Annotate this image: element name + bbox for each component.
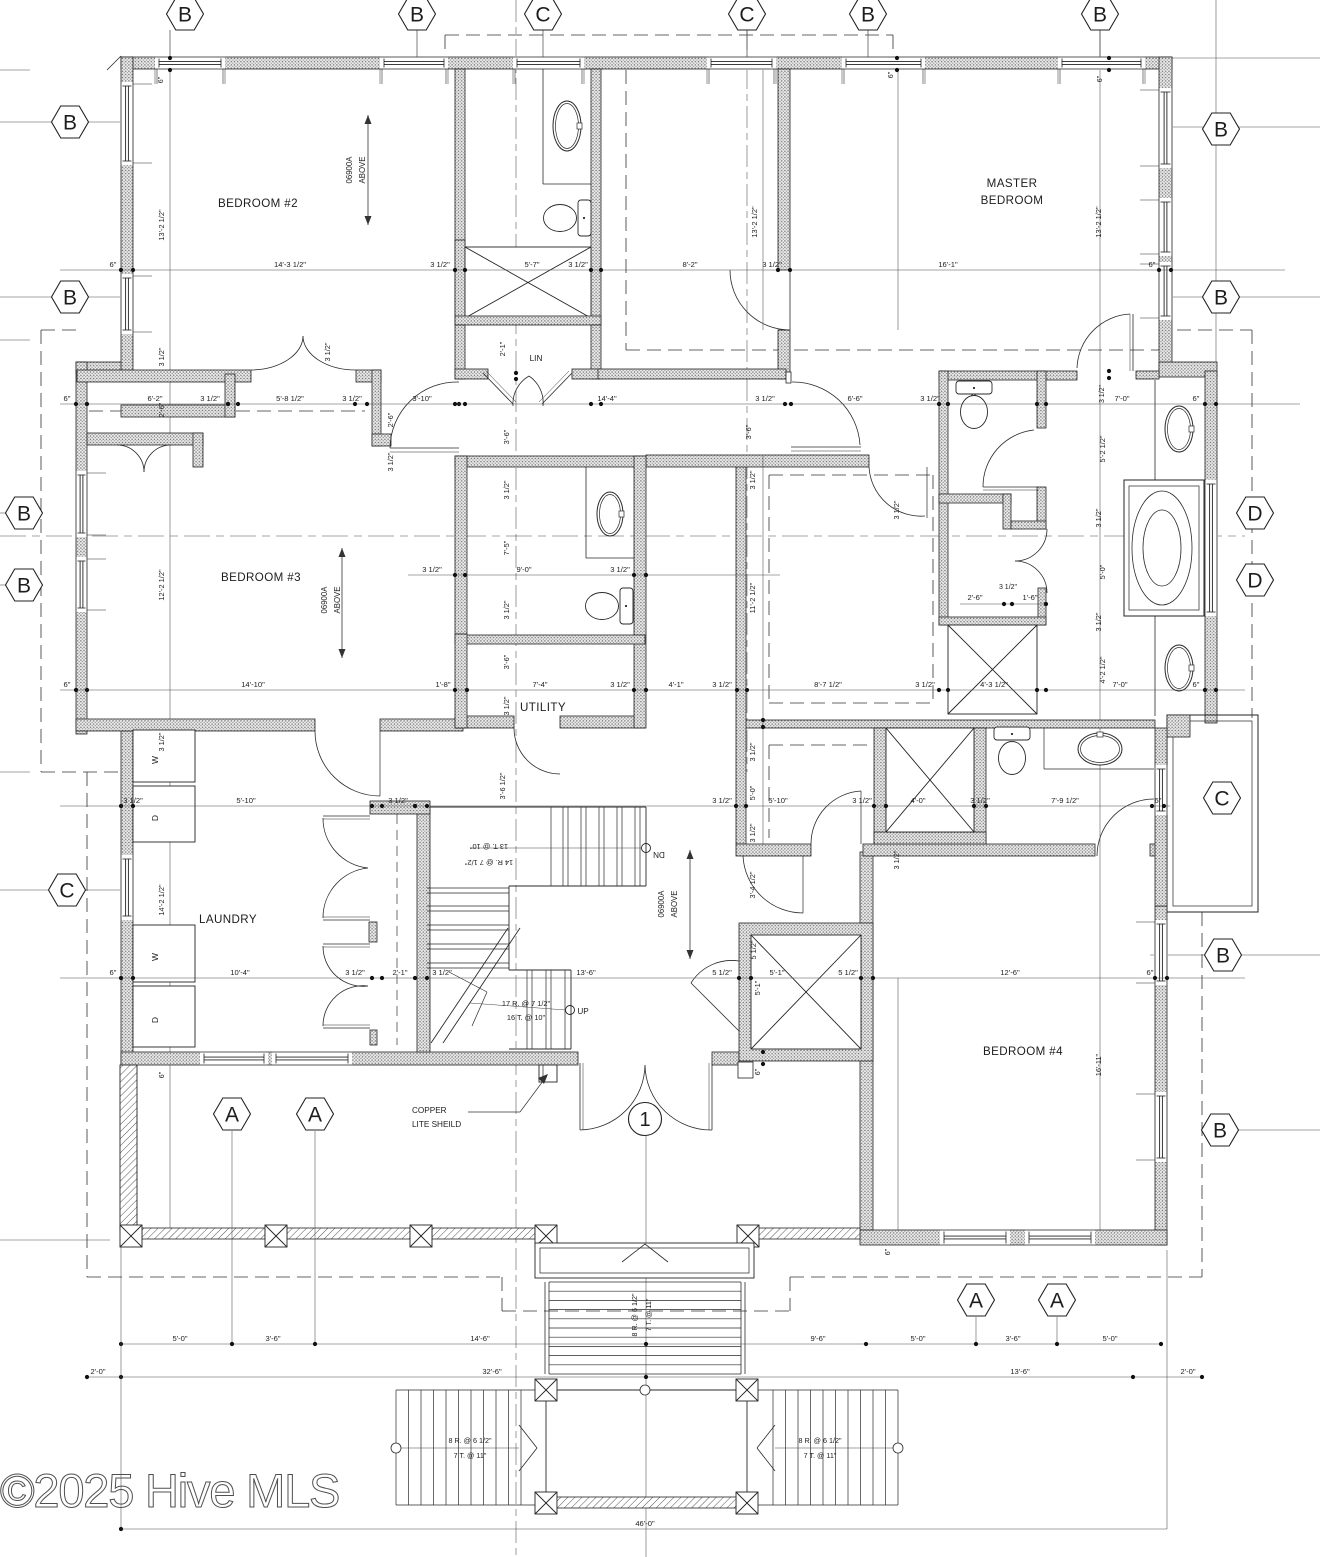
svg-text:B: B (410, 4, 424, 27)
svg-text:C: C (59, 880, 74, 903)
svg-text:8 R. @ 6 1/2": 8 R. @ 6 1/2" (630, 1293, 639, 1336)
svg-text:C: C (1214, 788, 1229, 811)
svg-text:06900A: 06900A (345, 156, 354, 184)
svg-text:06900A: 06900A (657, 890, 666, 918)
svg-text:4'-1": 4'-1" (668, 680, 683, 689)
svg-text:DN: DN (653, 850, 665, 859)
svg-text:5'-0": 5'-0" (748, 785, 757, 800)
svg-text:B: B (861, 4, 875, 27)
svg-text:4'-0": 4'-0" (910, 796, 925, 805)
svg-text:11'-2 1/2": 11'-2 1/2" (748, 582, 757, 613)
svg-text:7 T. @ 11": 7 T. @ 11" (644, 1298, 653, 1331)
svg-text:5'-0": 5'-0" (172, 1334, 187, 1343)
svg-text:7 T. @ 11": 7 T. @ 11" (454, 1451, 487, 1460)
svg-text:C: C (535, 4, 550, 27)
svg-text:LAUNDRY: LAUNDRY (199, 913, 257, 926)
svg-text:3 1/2": 3 1/2" (200, 394, 220, 403)
svg-text:6": 6" (157, 1071, 166, 1078)
svg-text:6'-2": 6'-2" (147, 394, 162, 403)
svg-text:B: B (1093, 4, 1107, 27)
svg-text:3'-10": 3'-10" (412, 394, 432, 403)
svg-text:5'-1": 5'-1" (769, 968, 784, 977)
svg-text:14'-10": 14'-10" (241, 680, 265, 689)
svg-text:13'-6": 13'-6" (1010, 1367, 1030, 1376)
svg-text:5 1/2": 5 1/2" (749, 940, 758, 959)
svg-text:16'-1": 16'-1" (938, 260, 958, 269)
svg-text:9'-0": 9'-0" (516, 565, 531, 574)
svg-text:ABOVE: ABOVE (670, 891, 679, 918)
svg-text:D: D (1247, 503, 1262, 526)
svg-text:5'-1": 5'-1" (753, 980, 762, 995)
svg-text:2'-1": 2'-1" (392, 968, 407, 977)
svg-text:A: A (308, 1104, 322, 1127)
svg-text:3 1/2": 3 1/2" (920, 394, 940, 403)
svg-text:B: B (1216, 945, 1230, 968)
svg-text:D: D (150, 1017, 160, 1023)
svg-text:1'-6": 1'-6" (1022, 593, 1037, 602)
svg-text:2'-6": 2'-6" (157, 402, 166, 417)
svg-text:3 1/2": 3 1/2" (915, 680, 935, 689)
svg-text:6": 6" (156, 76, 165, 83)
svg-text:3 1/2": 3 1/2" (386, 452, 395, 471)
svg-text:2'-1": 2'-1" (498, 341, 507, 356)
svg-text:12'-6": 12'-6" (1000, 968, 1020, 977)
svg-text:3 1/2": 3 1/2" (502, 480, 511, 499)
svg-text:14'-6": 14'-6" (470, 1334, 490, 1343)
svg-text:6": 6" (64, 394, 71, 403)
svg-text:7'-0": 7'-0" (1114, 394, 1129, 403)
svg-text:2'-0": 2'-0" (90, 1367, 105, 1376)
svg-text:16 T. @ 10": 16 T. @ 10" (507, 1013, 546, 1022)
svg-text:5'-10": 5'-10" (236, 796, 256, 805)
svg-text:14'-3 1/2": 14'-3 1/2" (274, 260, 306, 269)
svg-text:7'-0": 7'-0" (1112, 680, 1127, 689)
svg-text:6": 6" (1155, 796, 1162, 805)
svg-text:B: B (1214, 119, 1228, 142)
svg-text:BEDROOM #2: BEDROOM #2 (218, 197, 298, 210)
svg-text:7'-5": 7'-5" (502, 540, 511, 555)
svg-text:BEDROOM #3: BEDROOM #3 (221, 571, 301, 584)
svg-text:B: B (17, 575, 31, 598)
svg-text:13'-2 1/2": 13'-2 1/2" (1094, 206, 1103, 238)
svg-text:2'-6": 2'-6" (386, 412, 395, 427)
svg-text:B: B (63, 112, 77, 135)
svg-text:1'-8": 1'-8" (435, 680, 450, 689)
svg-text:3 1/2": 3 1/2" (502, 600, 511, 619)
svg-text:3'-6": 3'-6" (265, 1334, 280, 1343)
svg-text:5'-2 1/2": 5'-2 1/2" (1098, 435, 1107, 462)
svg-text:3'-6 1/2": 3'-6 1/2" (498, 772, 507, 799)
svg-text:A: A (225, 1104, 239, 1127)
svg-text:3'-6": 3'-6" (1005, 1334, 1020, 1343)
svg-text:46'-0": 46'-0" (635, 1519, 655, 1528)
svg-text:3'-6": 3'-6" (502, 429, 511, 444)
svg-text:COPPER: COPPER (412, 1106, 447, 1115)
svg-text:6": 6" (64, 680, 71, 689)
svg-text:5'-0": 5'-0" (1102, 1334, 1117, 1343)
svg-text:3 1/2": 3 1/2" (1094, 612, 1103, 631)
svg-text:D: D (1247, 570, 1262, 593)
svg-text:3 1/2": 3 1/2" (892, 850, 901, 869)
svg-text:06900A: 06900A (320, 586, 329, 614)
svg-text:B: B (1213, 1120, 1227, 1143)
svg-text:3 1/2": 3 1/2" (610, 680, 630, 689)
svg-text:D: D (150, 815, 160, 821)
svg-text:3 1/2": 3 1/2" (568, 260, 588, 269)
svg-text:3 1/2": 3 1/2" (712, 680, 732, 689)
svg-text:3 1/2": 3 1/2" (755, 394, 775, 403)
svg-text:10'-4": 10'-4" (230, 968, 250, 977)
svg-text:8'-7 1/2": 8'-7 1/2" (814, 680, 842, 689)
svg-text:4'-3 1/2": 4'-3 1/2" (980, 680, 1008, 689)
svg-text:6": 6" (1095, 75, 1104, 82)
svg-text:3 1/2": 3 1/2" (422, 565, 442, 574)
svg-text:3 1/2": 3 1/2" (892, 500, 901, 519)
svg-text:3 1/2": 3 1/2" (852, 796, 872, 805)
svg-text:3 1/2": 3 1/2" (157, 732, 166, 751)
svg-text:8 R. @ 6 1/2": 8 R. @ 6 1/2" (448, 1436, 491, 1445)
svg-text:BEDROOM: BEDROOM (981, 194, 1044, 207)
svg-text:14 R. @ 7 1/2": 14 R. @ 7 1/2" (464, 858, 513, 867)
svg-text:©2025 Hive MLS: ©2025 Hive MLS (0, 1464, 339, 1517)
svg-text:A: A (1050, 1290, 1064, 1313)
svg-text:5 1/2": 5 1/2" (838, 968, 858, 977)
svg-text:3'-6": 3'-6" (502, 654, 511, 669)
svg-text:5'-7": 5'-7" (524, 260, 539, 269)
svg-text:3 1/2": 3 1/2" (748, 742, 757, 761)
svg-text:6": 6" (110, 260, 117, 269)
svg-text:13'-2 1/2": 13'-2 1/2" (750, 206, 759, 238)
svg-text:3 1/2": 3 1/2" (610, 565, 630, 574)
svg-text:12'-2 1/2": 12'-2 1/2" (157, 569, 166, 601)
svg-text:16'-11": 16'-11" (1094, 1053, 1103, 1076)
svg-text:6": 6" (1147, 968, 1154, 977)
svg-text:UP: UP (577, 1007, 589, 1016)
svg-text:6'-6": 6'-6" (847, 394, 862, 403)
svg-text:2'-6": 2'-6" (967, 593, 982, 602)
svg-text:3'-4 1/2": 3'-4 1/2" (748, 871, 757, 898)
svg-text:13 T. @ 10": 13 T. @ 10" (469, 842, 508, 851)
svg-text:5'-0": 5'-0" (1098, 564, 1107, 579)
svg-text:ABOVE: ABOVE (333, 587, 342, 614)
svg-text:6": 6" (753, 1068, 762, 1075)
svg-text:MASTER: MASTER (987, 177, 1038, 190)
svg-text:6": 6" (1193, 680, 1200, 689)
svg-text:UTILITY: UTILITY (520, 701, 566, 714)
svg-text:7'-4": 7'-4" (532, 680, 547, 689)
svg-text:1: 1 (639, 1109, 650, 1131)
svg-text:13'-6": 13'-6" (576, 968, 596, 977)
svg-text:3 1/2": 3 1/2" (157, 347, 166, 366)
svg-text:7'-9 1/2": 7'-9 1/2" (1051, 796, 1079, 805)
svg-text:3 1/2": 3 1/2" (432, 968, 452, 977)
svg-text:32'-6": 32'-6" (482, 1367, 502, 1376)
svg-text:3 1/2": 3 1/2" (970, 796, 990, 805)
svg-text:3 1/2": 3 1/2" (762, 260, 782, 269)
svg-text:LITE SHEILD: LITE SHEILD (412, 1120, 461, 1129)
svg-text:W: W (150, 953, 160, 961)
svg-text:W: W (150, 756, 160, 764)
svg-text:B: B (63, 287, 77, 310)
svg-text:B: B (17, 503, 31, 526)
svg-text:3 1/2": 3 1/2" (123, 796, 143, 805)
svg-text:3 1/2": 3 1/2" (430, 260, 450, 269)
svg-text:3 1/2": 3 1/2" (712, 796, 732, 805)
svg-text:8'-2": 8'-2" (682, 260, 697, 269)
svg-text:2'-0": 2'-0" (1180, 1367, 1195, 1376)
svg-text:5'-8 1/2": 5'-8 1/2" (276, 394, 304, 403)
svg-text:6": 6" (110, 968, 117, 977)
svg-text:BEDROOM #4: BEDROOM #4 (983, 1045, 1063, 1058)
svg-text:3 1/2": 3 1/2" (999, 584, 1018, 591)
svg-text:3'-6": 3'-6" (744, 424, 753, 439)
svg-text:5 1/2": 5 1/2" (712, 968, 732, 977)
svg-text:B: B (178, 4, 192, 27)
svg-text:6": 6" (886, 71, 895, 78)
svg-text:3 1/2": 3 1/2" (342, 394, 362, 403)
svg-text:7 T. @ 11": 7 T. @ 11" (804, 1451, 837, 1460)
svg-text:3 1/2": 3 1/2" (748, 823, 757, 842)
svg-text:A: A (969, 1290, 983, 1313)
svg-text:3 1/2": 3 1/2" (1094, 508, 1103, 527)
svg-text:C: C (739, 4, 754, 27)
svg-text:3 1/2": 3 1/2" (323, 342, 332, 361)
svg-text:B: B (1214, 287, 1228, 310)
svg-text:3 1/2": 3 1/2" (345, 968, 365, 977)
svg-text:LIN: LIN (530, 354, 543, 363)
svg-text:4'-2 1/2": 4'-2 1/2" (1098, 656, 1107, 683)
svg-text:8 R. @ 6 1/2": 8 R. @ 6 1/2" (798, 1436, 841, 1445)
svg-text:5'-10": 5'-10" (768, 796, 788, 805)
svg-text:14'-2 1/2": 14'-2 1/2" (157, 884, 166, 916)
svg-text:6": 6" (883, 1248, 892, 1255)
svg-text:17 R. @ 7 1/2": 17 R. @ 7 1/2" (502, 999, 551, 1008)
svg-text:6": 6" (1193, 394, 1200, 403)
svg-text:3 1/2": 3 1/2" (388, 796, 408, 805)
svg-text:5'-0": 5'-0" (910, 1334, 925, 1343)
svg-text:ABOVE: ABOVE (358, 157, 367, 184)
svg-text:9'-6": 9'-6" (810, 1334, 825, 1343)
svg-text:3 1/2": 3 1/2" (1099, 384, 1106, 403)
svg-text:3 1/2": 3 1/2" (502, 696, 511, 715)
svg-text:14'-4": 14'-4" (597, 394, 617, 403)
svg-text:13'-2 1/2": 13'-2 1/2" (157, 209, 166, 241)
svg-text:3 1/2": 3 1/2" (748, 470, 757, 489)
svg-text:6": 6" (1149, 260, 1156, 269)
